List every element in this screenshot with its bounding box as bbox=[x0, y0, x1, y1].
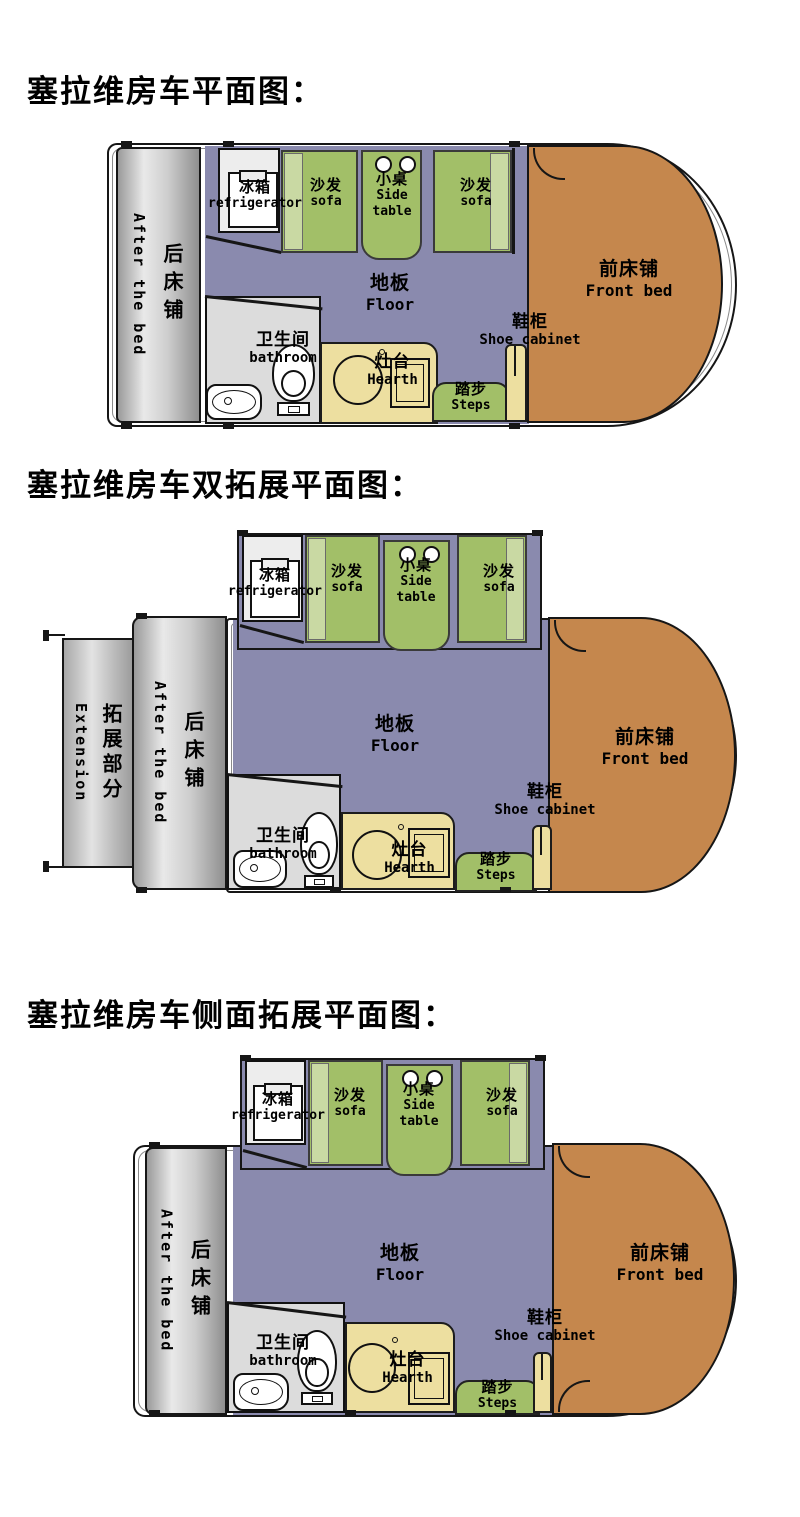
shoe-cabinet-area bbox=[532, 825, 552, 890]
floorplan-standard: After the bed 后床铺 bbox=[105, 140, 750, 432]
rear-bed-area: After the bed 后床铺 bbox=[132, 616, 227, 890]
rear-bed-label-en: After the bed bbox=[158, 1209, 176, 1352]
shoe-cabinet-pointer-line bbox=[541, 1354, 543, 1380]
extension-label-en: Extension bbox=[72, 703, 90, 802]
steps-label: 踏步Steps bbox=[435, 380, 507, 414]
side-table-label: 小桌Sidetable bbox=[359, 170, 425, 219]
shoe-cabinet-pointer-line bbox=[540, 827, 542, 855]
floorplan-double-extension: Extension 拓展部分 After the bed 后床铺 bbox=[40, 530, 750, 900]
mount-bracket bbox=[535, 1055, 546, 1061]
rear-bed-label-cn: 后床铺 bbox=[179, 711, 208, 795]
floor-label: 地板Floor bbox=[335, 272, 445, 314]
sofa-right-label: 沙发sofa bbox=[464, 562, 534, 596]
sofa-left-label: 沙发sofa bbox=[312, 562, 382, 596]
front-bed-label: 前床铺Front bed bbox=[598, 1242, 722, 1284]
sofa-left-label: 沙发sofa bbox=[315, 1086, 385, 1120]
mount-bracket bbox=[149, 1410, 160, 1416]
mount-bracket bbox=[532, 530, 543, 536]
bathroom-label: 卫生间bathroom bbox=[227, 1333, 339, 1370]
floor-label: 地板Floor bbox=[345, 1242, 455, 1284]
bathroom-label: 卫生间bathroom bbox=[225, 330, 341, 367]
mount-bracket bbox=[149, 1142, 160, 1148]
mount-bracket bbox=[330, 887, 341, 893]
mount-bracket bbox=[136, 887, 147, 893]
rear-bed-label-en: After the bed bbox=[151, 681, 169, 824]
mount-bracket bbox=[509, 423, 520, 429]
hearth-label: 灶台Hearth bbox=[360, 1350, 455, 1387]
shoe-cabinet-label: 鞋柜Shoe cabinet bbox=[470, 1308, 620, 1345]
shoe-cabinet-label: 鞋柜Shoe cabinet bbox=[455, 312, 605, 349]
mount-bracket bbox=[223, 141, 234, 147]
sink-icon bbox=[233, 1373, 289, 1411]
bathroom-label: 卫生间bathroom bbox=[227, 826, 339, 863]
extension-label-cn: 拓展部分 bbox=[97, 703, 126, 803]
sofa-right-label: 沙发sofa bbox=[441, 176, 511, 210]
shoe-cabinet-area bbox=[505, 344, 527, 422]
plan1-title: 塞拉维房车平面图： bbox=[27, 66, 324, 111]
mount-bracket bbox=[223, 423, 234, 429]
mount-bracket bbox=[345, 1410, 356, 1416]
rear-bed-area: After the bed 后床铺 bbox=[145, 1147, 227, 1415]
steps-label: 踏步Steps bbox=[460, 850, 532, 884]
mount-bracket bbox=[121, 423, 132, 429]
sink-icon bbox=[206, 384, 262, 420]
rear-bed-area: After the bed 后床铺 bbox=[116, 147, 201, 423]
mount-bracket bbox=[136, 613, 147, 619]
page: 塞拉维房车平面图： 塞拉维房车双拓展平面图： 塞拉维房车侧面拓展平面图： Aft… bbox=[0, 0, 800, 1517]
hearth-label: 灶台Hearth bbox=[362, 840, 457, 877]
rear-bed-label-cn: 后床铺 bbox=[186, 1239, 215, 1323]
toilet-tank-icon bbox=[301, 1392, 333, 1405]
rear-bed-label-cn: 后床铺 bbox=[158, 243, 187, 327]
side-table-label: 小桌Sidetable bbox=[386, 1080, 452, 1129]
front-bed-label: 前床铺Front bed bbox=[567, 258, 691, 300]
mount-bracket bbox=[240, 1055, 251, 1061]
rail-end-cap bbox=[43, 861, 49, 872]
hearth-label: 灶台Hearth bbox=[345, 352, 440, 389]
plan2-title: 塞拉维房车双拓展平面图： bbox=[27, 460, 423, 505]
cabin-right-wall bbox=[512, 148, 515, 254]
shoe-cabinet-label: 鞋柜Shoe cabinet bbox=[470, 782, 620, 819]
sofa-left-label: 沙发sofa bbox=[291, 176, 361, 210]
mount-bracket bbox=[509, 141, 520, 147]
sofa-right-label: 沙发sofa bbox=[467, 1086, 537, 1120]
mount-bracket bbox=[121, 141, 132, 147]
extension-area: Extension 拓展部分 bbox=[62, 638, 136, 868]
mount-bracket bbox=[500, 887, 511, 893]
side-table-label: 小桌Sidetable bbox=[383, 556, 449, 605]
steps-label: 踏步Steps bbox=[460, 1378, 535, 1412]
floor-label: 地板Floor bbox=[340, 713, 450, 755]
mount-bracket bbox=[237, 530, 248, 536]
floorplan-side-extension: After the bed 后床铺 bbox=[105, 1050, 750, 1450]
front-bed-label: 前床铺Front bed bbox=[583, 726, 707, 768]
rail-end-cap bbox=[43, 630, 49, 641]
shoe-cabinet-pointer-line bbox=[514, 346, 516, 376]
plan3-title: 塞拉维房车侧面拓展平面图： bbox=[27, 990, 456, 1035]
toilet-tank-icon bbox=[277, 402, 310, 416]
rear-bed-label-en: After the bed bbox=[130, 213, 148, 356]
